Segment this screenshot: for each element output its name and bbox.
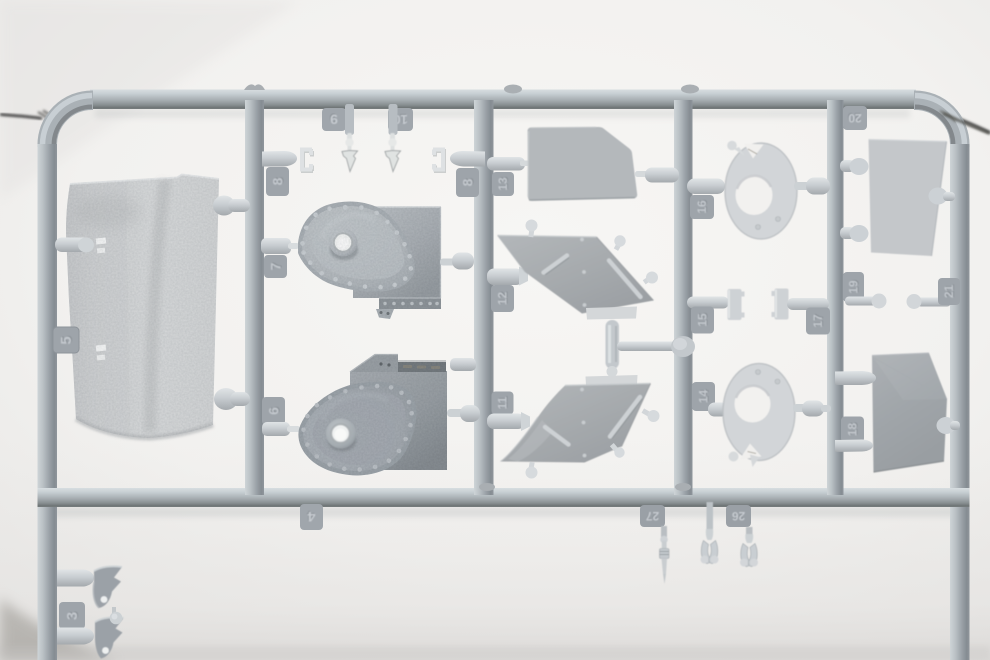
- svg-text:8: 8: [270, 177, 286, 185]
- svg-text:26: 26: [732, 509, 746, 523]
- svg-text:9: 9: [330, 112, 338, 128]
- svg-text:3: 3: [64, 612, 81, 620]
- svg-text:15: 15: [696, 313, 710, 327]
- svg-text:21: 21: [942, 285, 956, 299]
- svg-text:4: 4: [307, 509, 315, 525]
- svg-text:11: 11: [496, 396, 510, 409]
- svg-text:12: 12: [496, 292, 510, 306]
- svg-text:17: 17: [811, 314, 825, 328]
- svg-text:20: 20: [848, 111, 862, 125]
- svg-text:7: 7: [268, 262, 284, 270]
- svg-text:16: 16: [695, 200, 709, 214]
- svg-text:8: 8: [460, 178, 476, 186]
- svg-text:14: 14: [697, 390, 711, 404]
- svg-text:5: 5: [58, 336, 75, 344]
- svg-text:27: 27: [646, 509, 660, 523]
- svg-text:18: 18: [846, 423, 860, 437]
- svg-text:13: 13: [496, 177, 510, 191]
- svg-text:19: 19: [847, 280, 861, 294]
- svg-text:6: 6: [266, 407, 282, 415]
